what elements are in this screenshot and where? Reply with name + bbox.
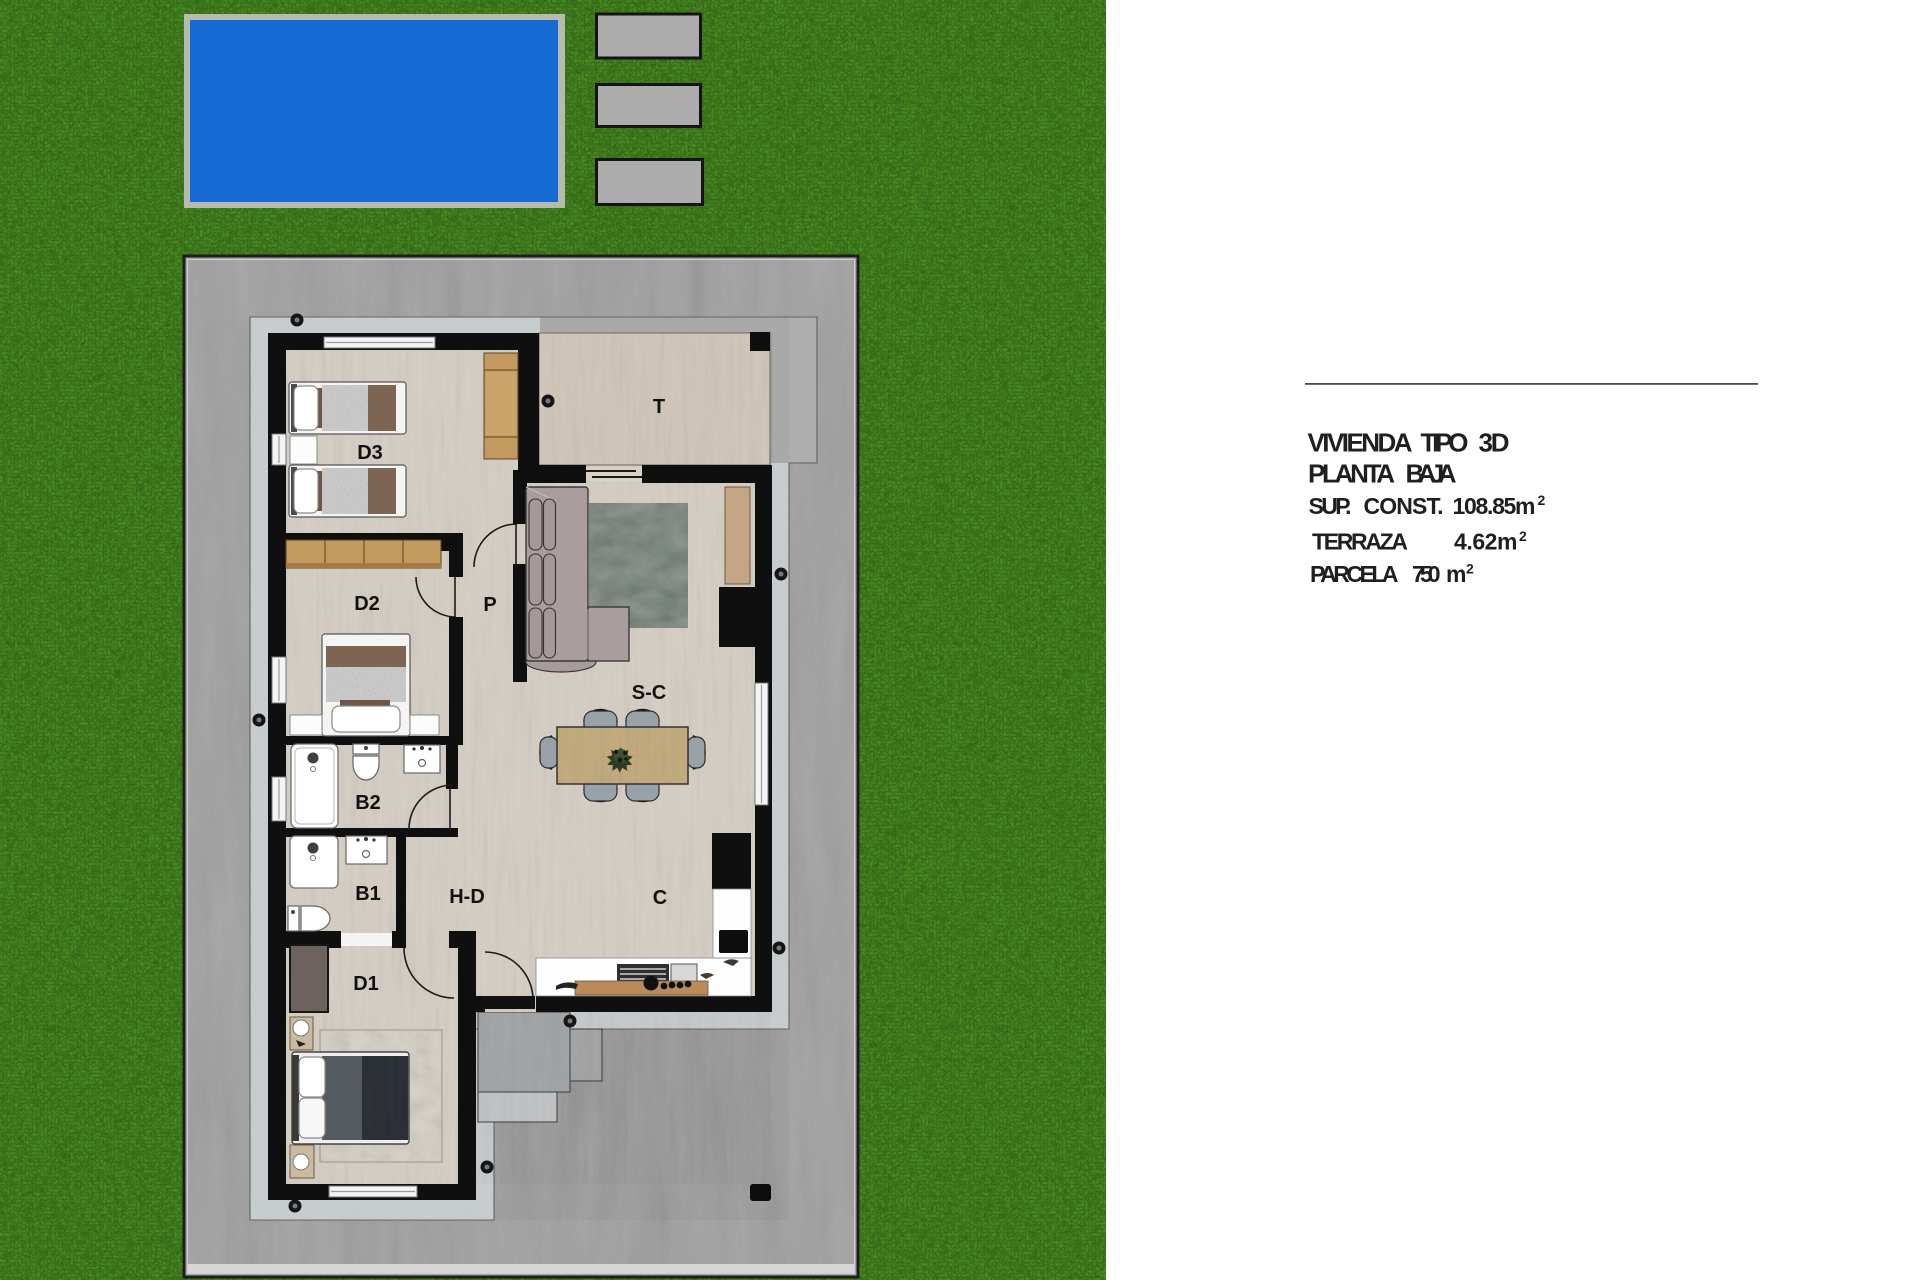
svg-text:PARCELA: PARCELA bbox=[1310, 561, 1399, 587]
svg-text:D1: D1 bbox=[353, 973, 379, 995]
svg-text:B1: B1 bbox=[355, 883, 381, 905]
svg-text:S-C: S-C bbox=[632, 682, 666, 704]
svg-text:D3: D3 bbox=[357, 442, 383, 464]
svg-text:2: 2 bbox=[1466, 561, 1474, 577]
svg-text:T: T bbox=[653, 396, 665, 418]
svg-text:4.62m: 4.62m bbox=[1454, 529, 1518, 555]
svg-text:P: P bbox=[483, 594, 496, 616]
svg-text:2: 2 bbox=[1538, 492, 1546, 508]
svg-text:PLANTA: PLANTA bbox=[1308, 459, 1395, 489]
svg-text:CONST.: CONST. bbox=[1364, 493, 1444, 519]
svg-text:TIPO: TIPO bbox=[1421, 428, 1469, 458]
svg-text:D2: D2 bbox=[354, 593, 380, 615]
svg-text:108.85m: 108.85m bbox=[1453, 493, 1536, 519]
svg-text:VIVIENDA: VIVIENDA bbox=[1308, 428, 1413, 458]
svg-text:C: C bbox=[653, 887, 667, 909]
svg-text:B2: B2 bbox=[355, 792, 381, 814]
svg-text:BAJA: BAJA bbox=[1406, 459, 1457, 489]
svg-text:TERRAZA: TERRAZA bbox=[1312, 529, 1408, 555]
svg-text:750: 750 bbox=[1412, 561, 1441, 587]
svg-text:SUP.: SUP. bbox=[1309, 493, 1352, 519]
svg-text:2: 2 bbox=[1519, 528, 1527, 544]
svg-text:3D: 3D bbox=[1479, 428, 1510, 458]
svg-text:H-D: H-D bbox=[449, 886, 485, 908]
svg-text:m: m bbox=[1446, 561, 1466, 587]
